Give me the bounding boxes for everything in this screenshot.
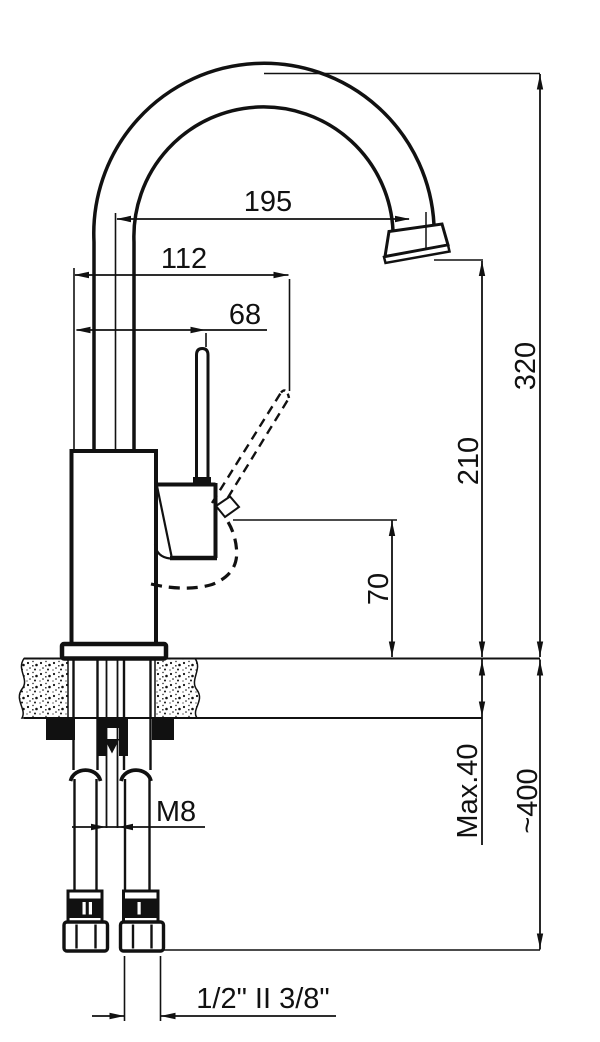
- faucet-dimension-drawing: 195 112 68 320 210 70 Max.40 ~400 M8 1/2…: [0, 0, 600, 1042]
- dim-label-max-counter-thickness: Max.40: [452, 743, 484, 838]
- dim-label-handle-offset: 68: [229, 299, 261, 331]
- mounting-hardware: [46, 719, 174, 757]
- dim-label-hose-threads: 1/2" II 3/8": [196, 983, 329, 1015]
- hose-connectors: [64, 891, 164, 951]
- cartridge-housing: [154, 483, 217, 559]
- lever-cap-dashed: [281, 390, 289, 398]
- faucet-body: [72, 451, 157, 645]
- dimension-labels: 195 112 68 320 210 70 Max.40 ~400 M8 1/2…: [156, 186, 544, 1015]
- hose-ferrule-right: [124, 891, 159, 923]
- dim-label-outlet-height: 210: [453, 437, 485, 485]
- under-counter-assembly: [71, 658, 152, 890]
- dim-label-handle-reach: 112: [161, 243, 207, 275]
- supply-pipe-right: [121, 658, 151, 890]
- spout: [94, 63, 450, 451]
- hose-nut-left: [64, 922, 108, 951]
- supply-pipe-left: [71, 658, 101, 890]
- dim-label-overall-height: 320: [510, 342, 542, 390]
- countertop-left-section: [19, 659, 68, 719]
- hose-ferrule-left: [68, 891, 102, 923]
- dim-label-spout-reach: 195: [244, 186, 292, 218]
- technical-drawing-page: 195 112 68 320 210 70 Max.40 ~400 M8 1/2…: [0, 0, 600, 1042]
- base-flange: [62, 644, 166, 659]
- mounting-bracket: [97, 719, 128, 757]
- faucet: [62, 349, 289, 659]
- handle-rod: [197, 349, 209, 485]
- dim-label-hose-length: ~400: [512, 768, 544, 833]
- handle-rod-collar: [193, 477, 211, 486]
- dim-label-body-height: 70: [363, 573, 395, 605]
- countertop-right-section: [155, 659, 200, 719]
- spout-inner-edge: [134, 107, 393, 451]
- hose-nut-right: [121, 922, 164, 951]
- dim-label-stud-thread: M8: [156, 796, 196, 828]
- lever-neck: [216, 497, 239, 518]
- mounting-washer-left: [46, 719, 75, 740]
- mounting-washer-right: [152, 719, 174, 740]
